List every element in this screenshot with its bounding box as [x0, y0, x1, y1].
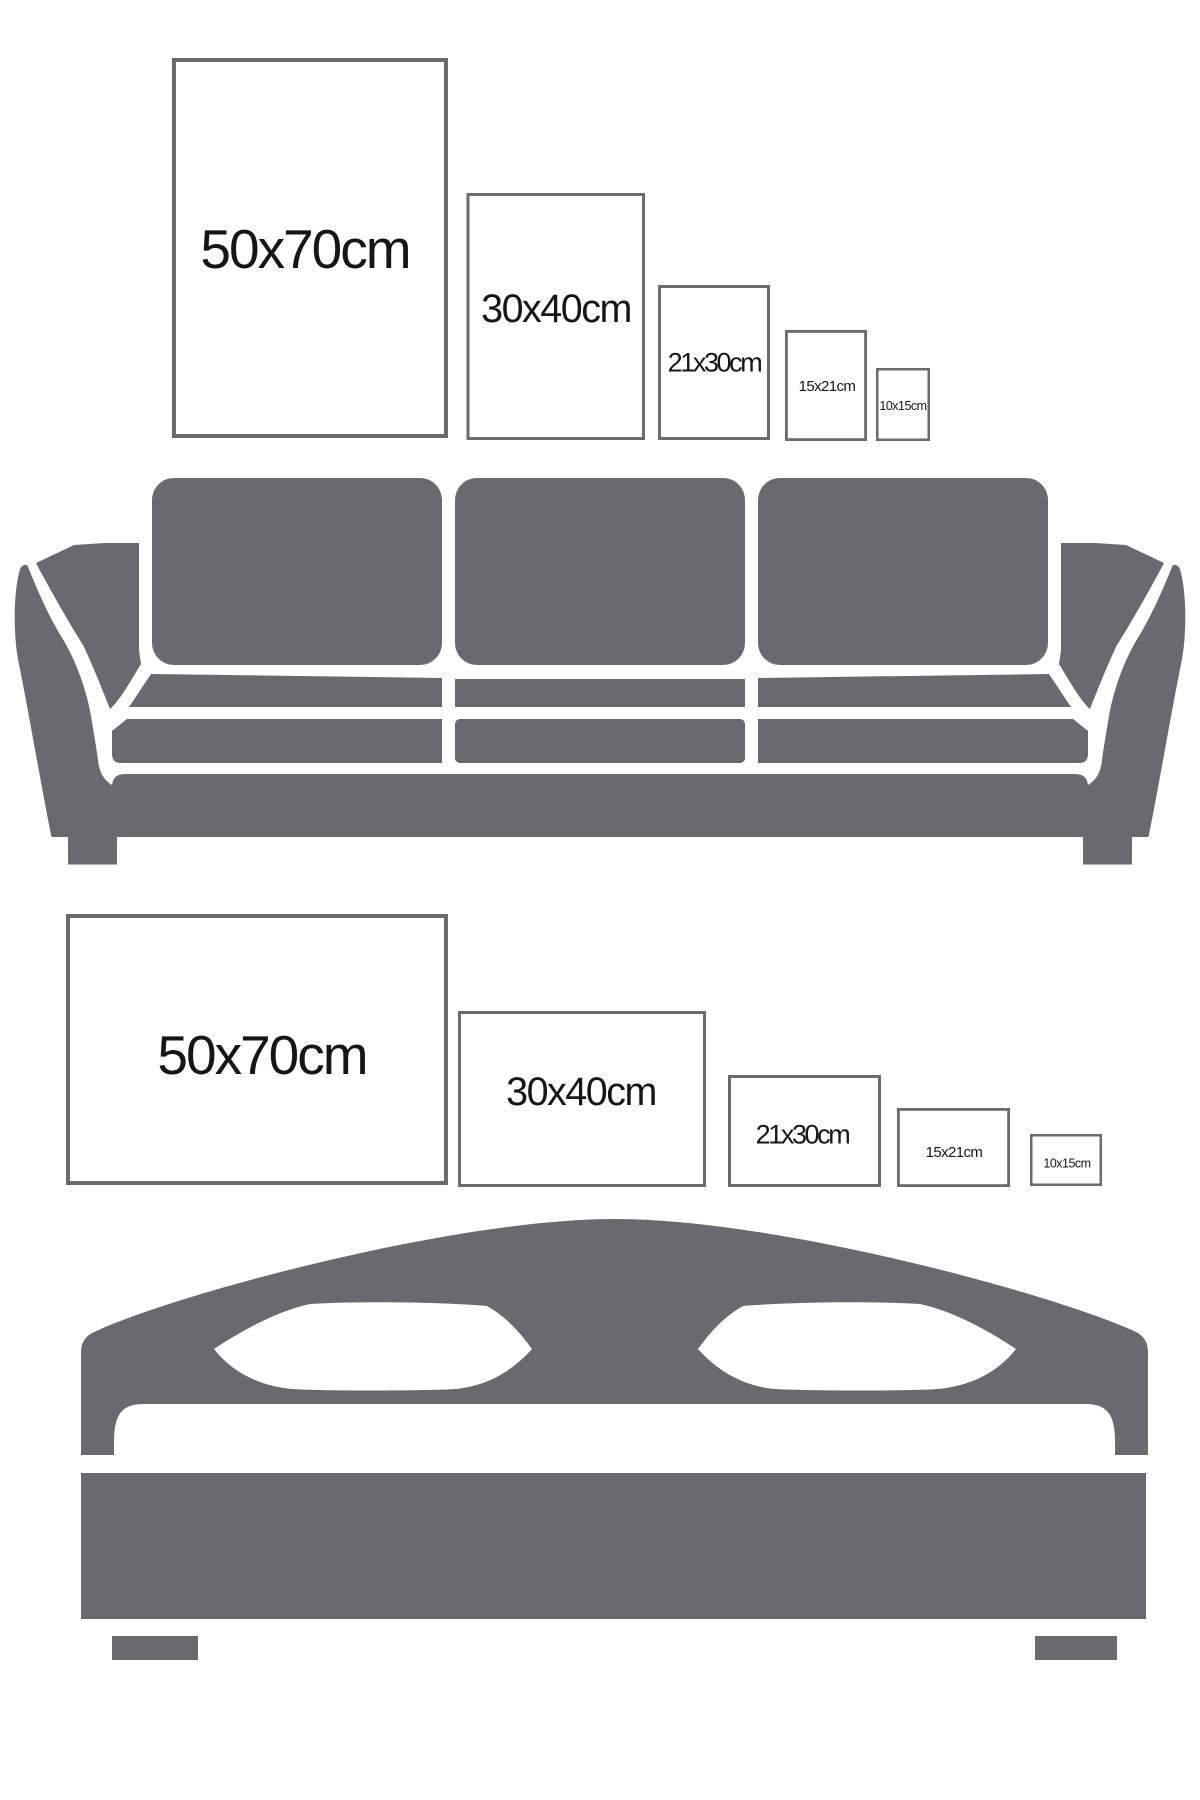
svg-text:10x15cm: 10x15cm	[879, 399, 926, 413]
svg-text:30x40cm: 30x40cm	[481, 287, 631, 331]
svg-text:21x30cm: 21x30cm	[756, 1119, 850, 1149]
svg-text:30x40cm: 30x40cm	[506, 1070, 656, 1114]
svg-text:15x21cm: 15x21cm	[926, 1144, 983, 1161]
svg-text:50x70cm: 50x70cm	[200, 218, 409, 280]
svg-text:21x30cm: 21x30cm	[668, 348, 762, 378]
svg-text:10x15cm: 10x15cm	[1043, 1157, 1090, 1171]
svg-text:15x21cm: 15x21cm	[799, 378, 856, 395]
svg-text:50x70cm: 50x70cm	[157, 1024, 366, 1086]
